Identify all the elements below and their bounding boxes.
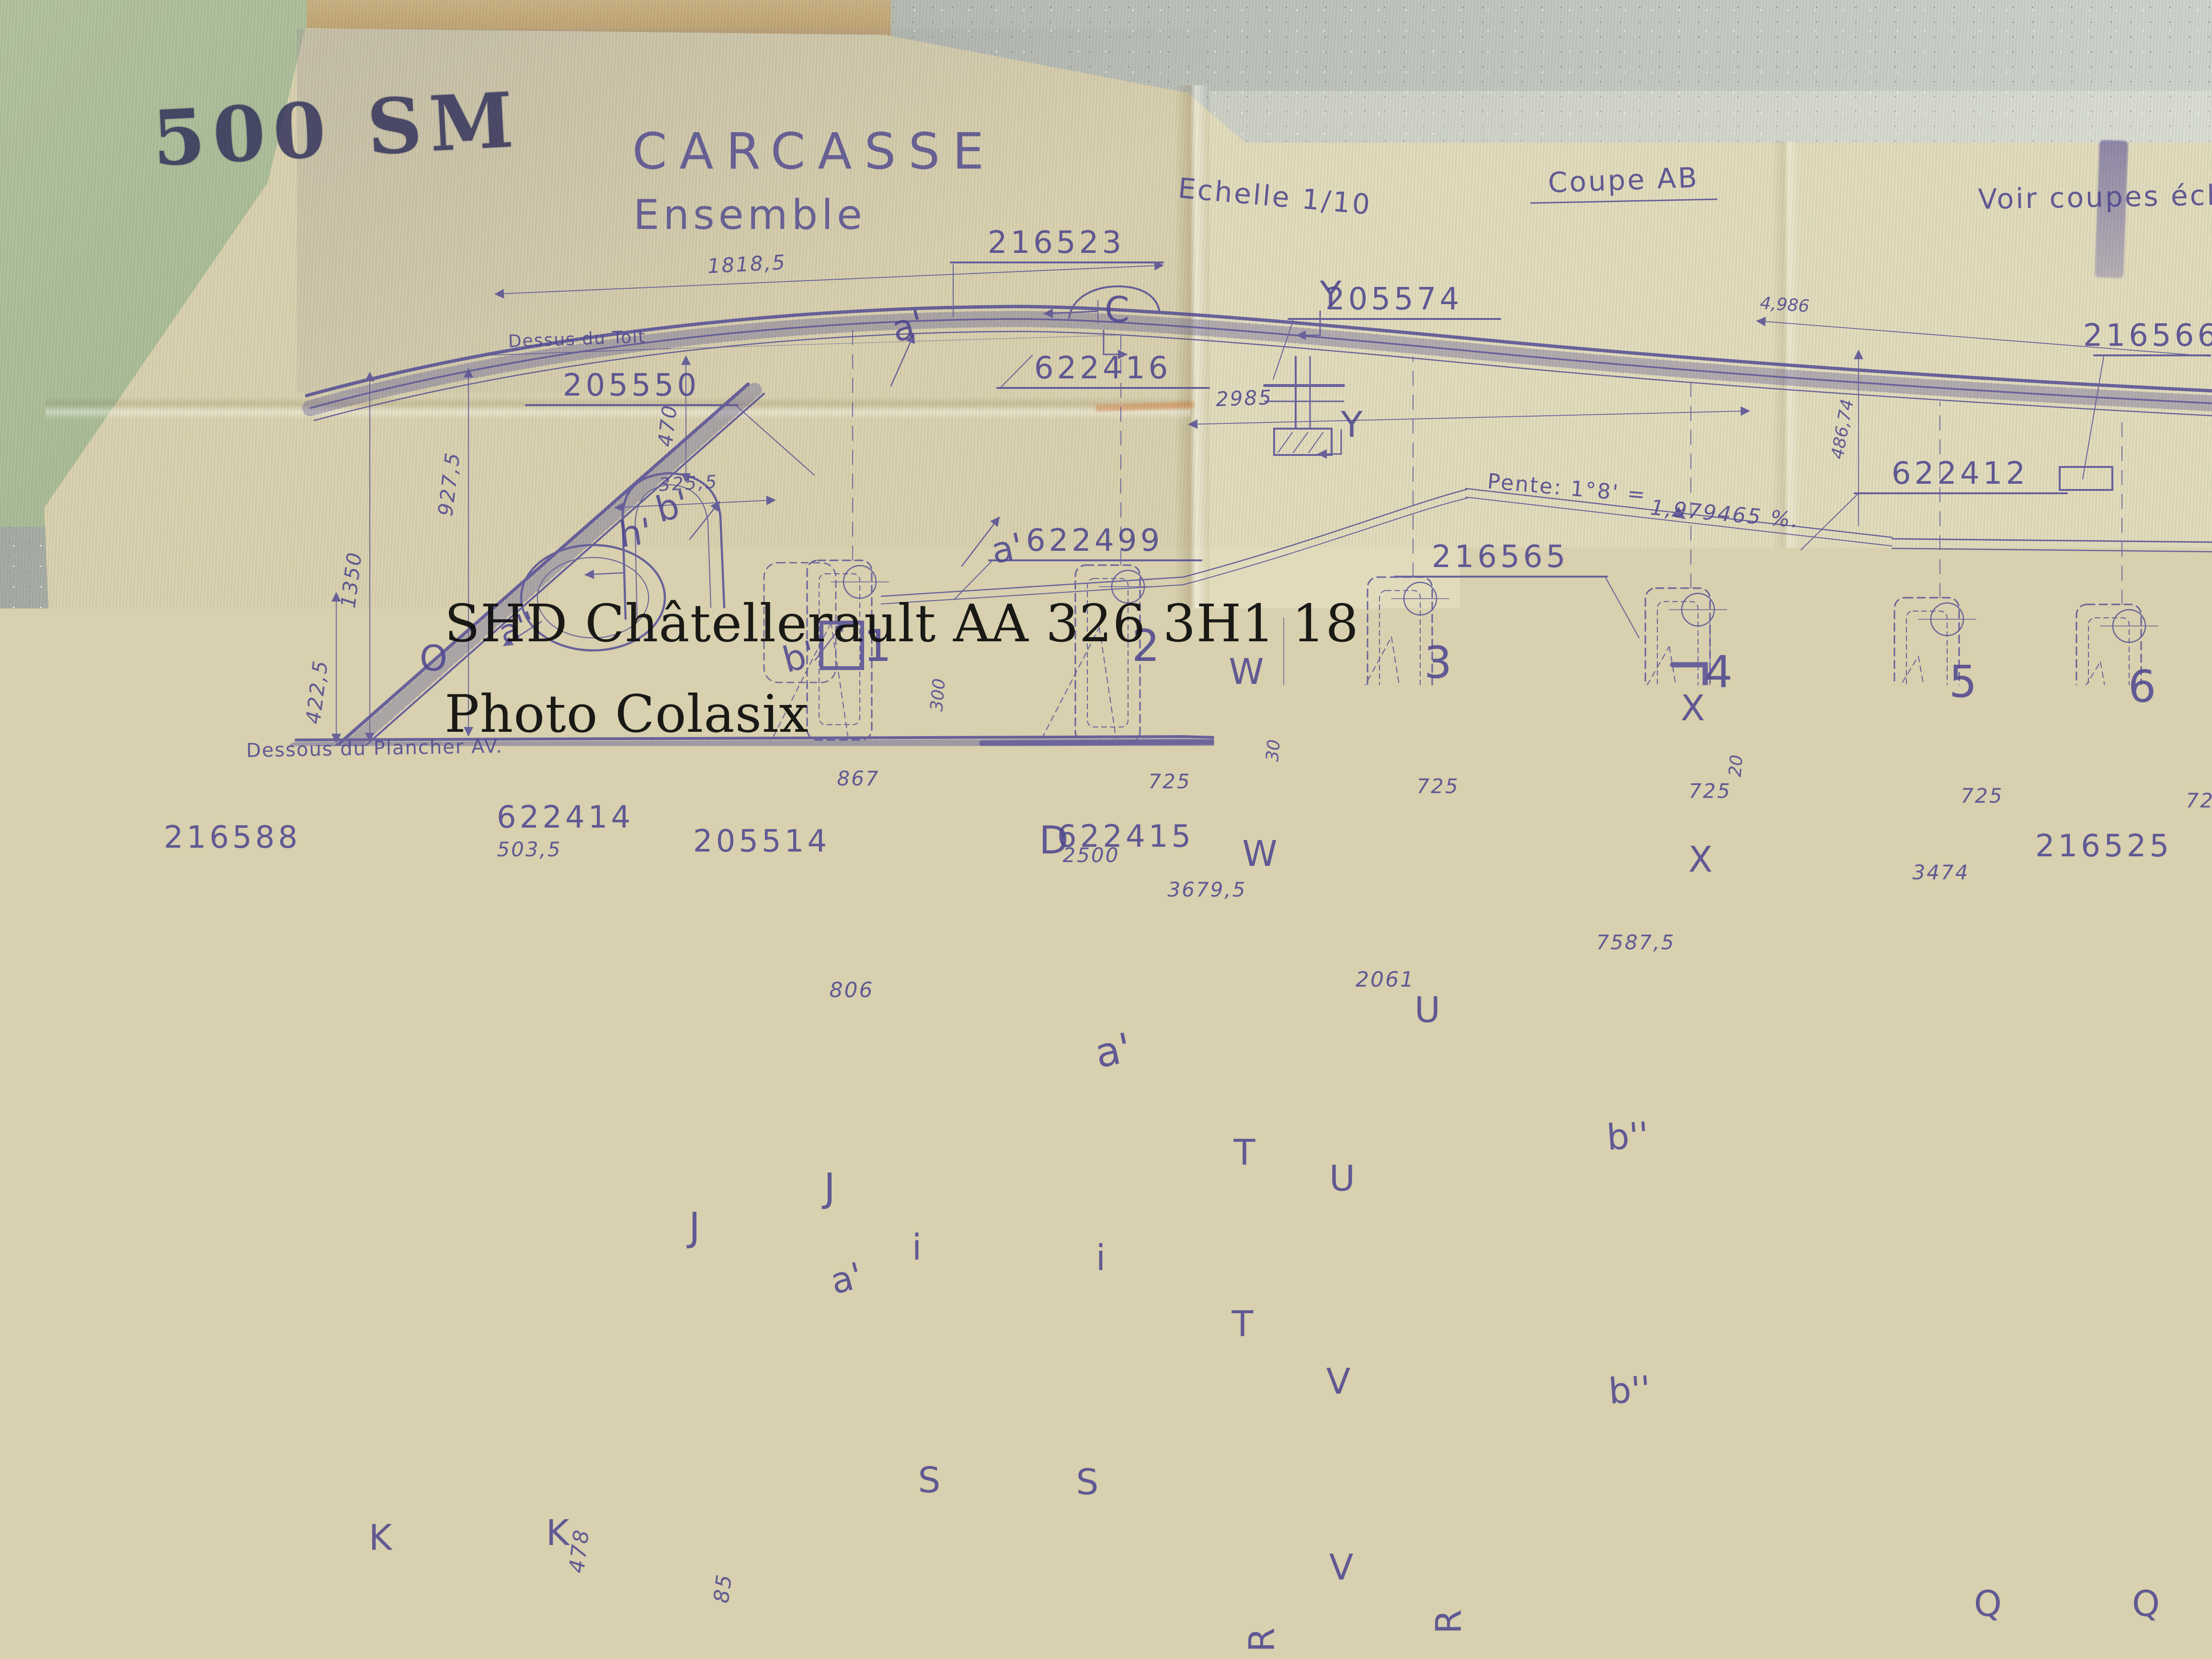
photo-grain bbox=[0, 0, 2212, 1659]
